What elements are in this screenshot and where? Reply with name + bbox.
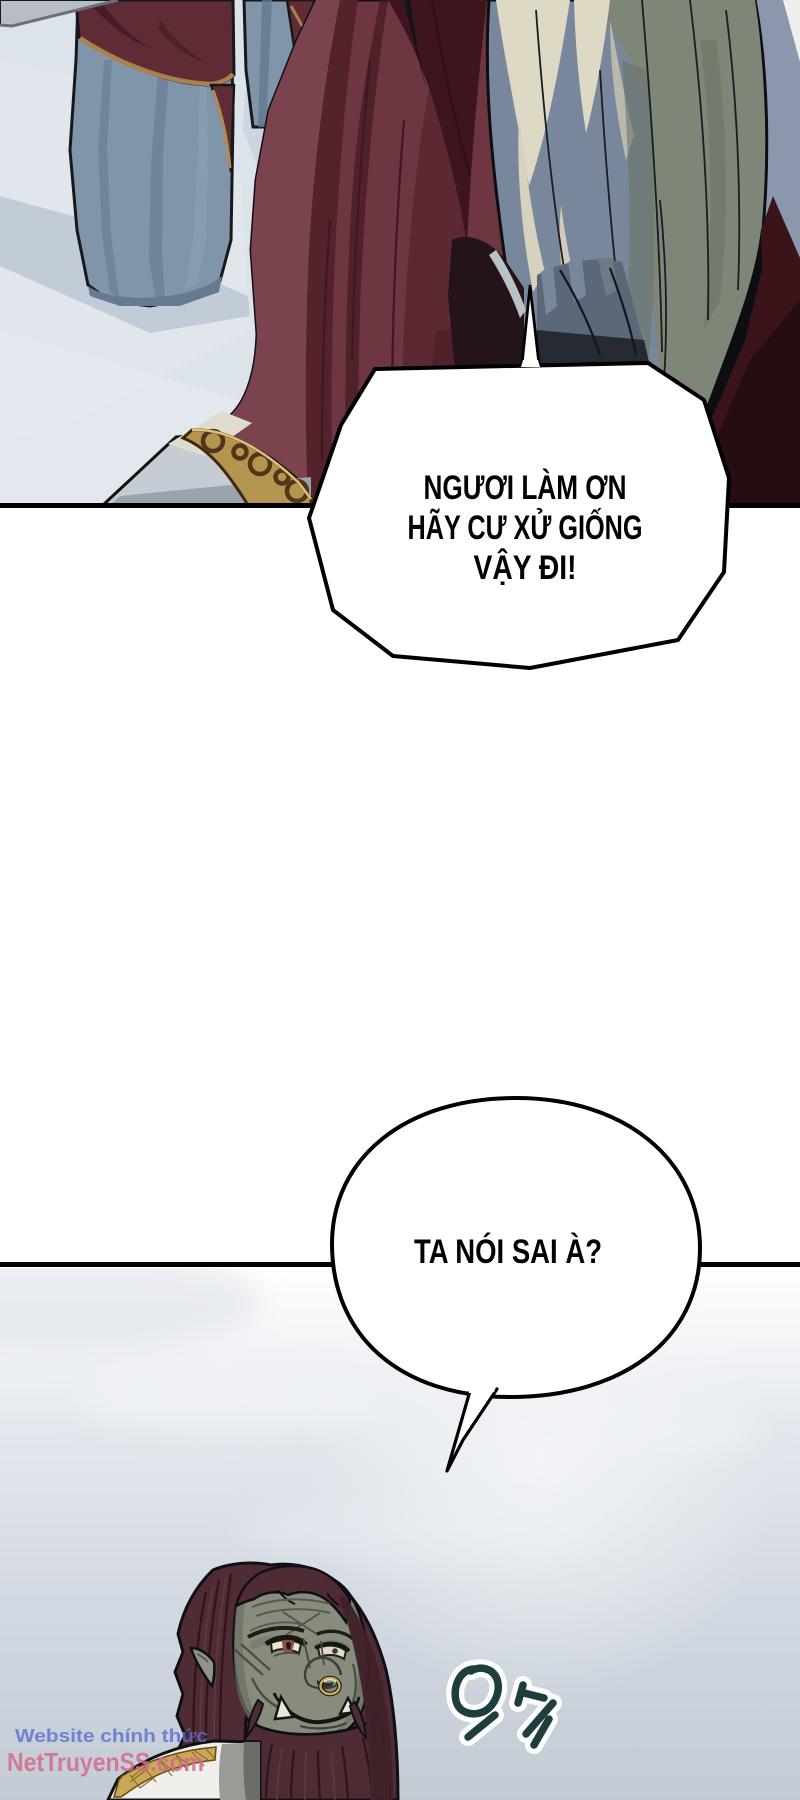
svg-text:TA NÓI SAI À?: TA NÓI SAI À? [414, 1233, 602, 1271]
svg-text:NGƯƠI LÀM ƠN: NGƯƠI LÀM ƠN [424, 469, 627, 507]
svg-text:HÃY CƯ XỬ GIỐNG: HÃY CƯ XỬ GIỐNG [408, 508, 643, 547]
svg-text:Website chính thức: Website chính thức [15, 1726, 208, 1746]
svg-text:VẬY ĐI!: VẬY ĐI! [474, 549, 577, 587]
svg-text:NetTruyenSS.com: NetTruyenSS.com [7, 1747, 204, 1777]
